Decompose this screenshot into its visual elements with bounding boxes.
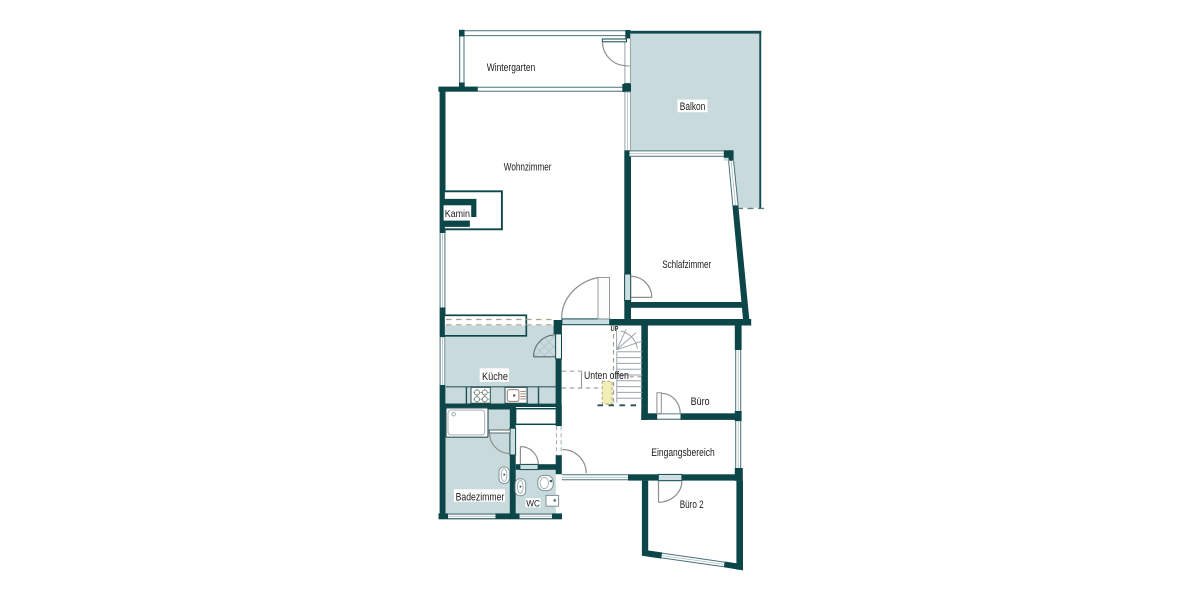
svg-text:Balkon: Balkon — [680, 101, 706, 113]
svg-text:Wohnzimmer: Wohnzimmer — [504, 162, 552, 174]
svg-text:UP: UP — [611, 326, 619, 333]
svg-text:Büro 2: Büro 2 — [680, 499, 704, 511]
svg-text:Badezimmer: Badezimmer — [456, 491, 505, 503]
svg-text:Büro: Büro — [691, 396, 710, 408]
svg-text:Küche: Küche — [482, 371, 508, 383]
svg-text:Kamin: Kamin — [445, 209, 470, 220]
svg-text:Wintergarten: Wintergarten — [487, 62, 536, 74]
svg-text:Unten offen: Unten offen — [584, 370, 629, 382]
svg-text:Eingangsbereich: Eingangsbereich — [651, 447, 714, 459]
svg-text:WC: WC — [526, 498, 540, 508]
svg-text:Schlafzimmer: Schlafzimmer — [662, 259, 711, 271]
